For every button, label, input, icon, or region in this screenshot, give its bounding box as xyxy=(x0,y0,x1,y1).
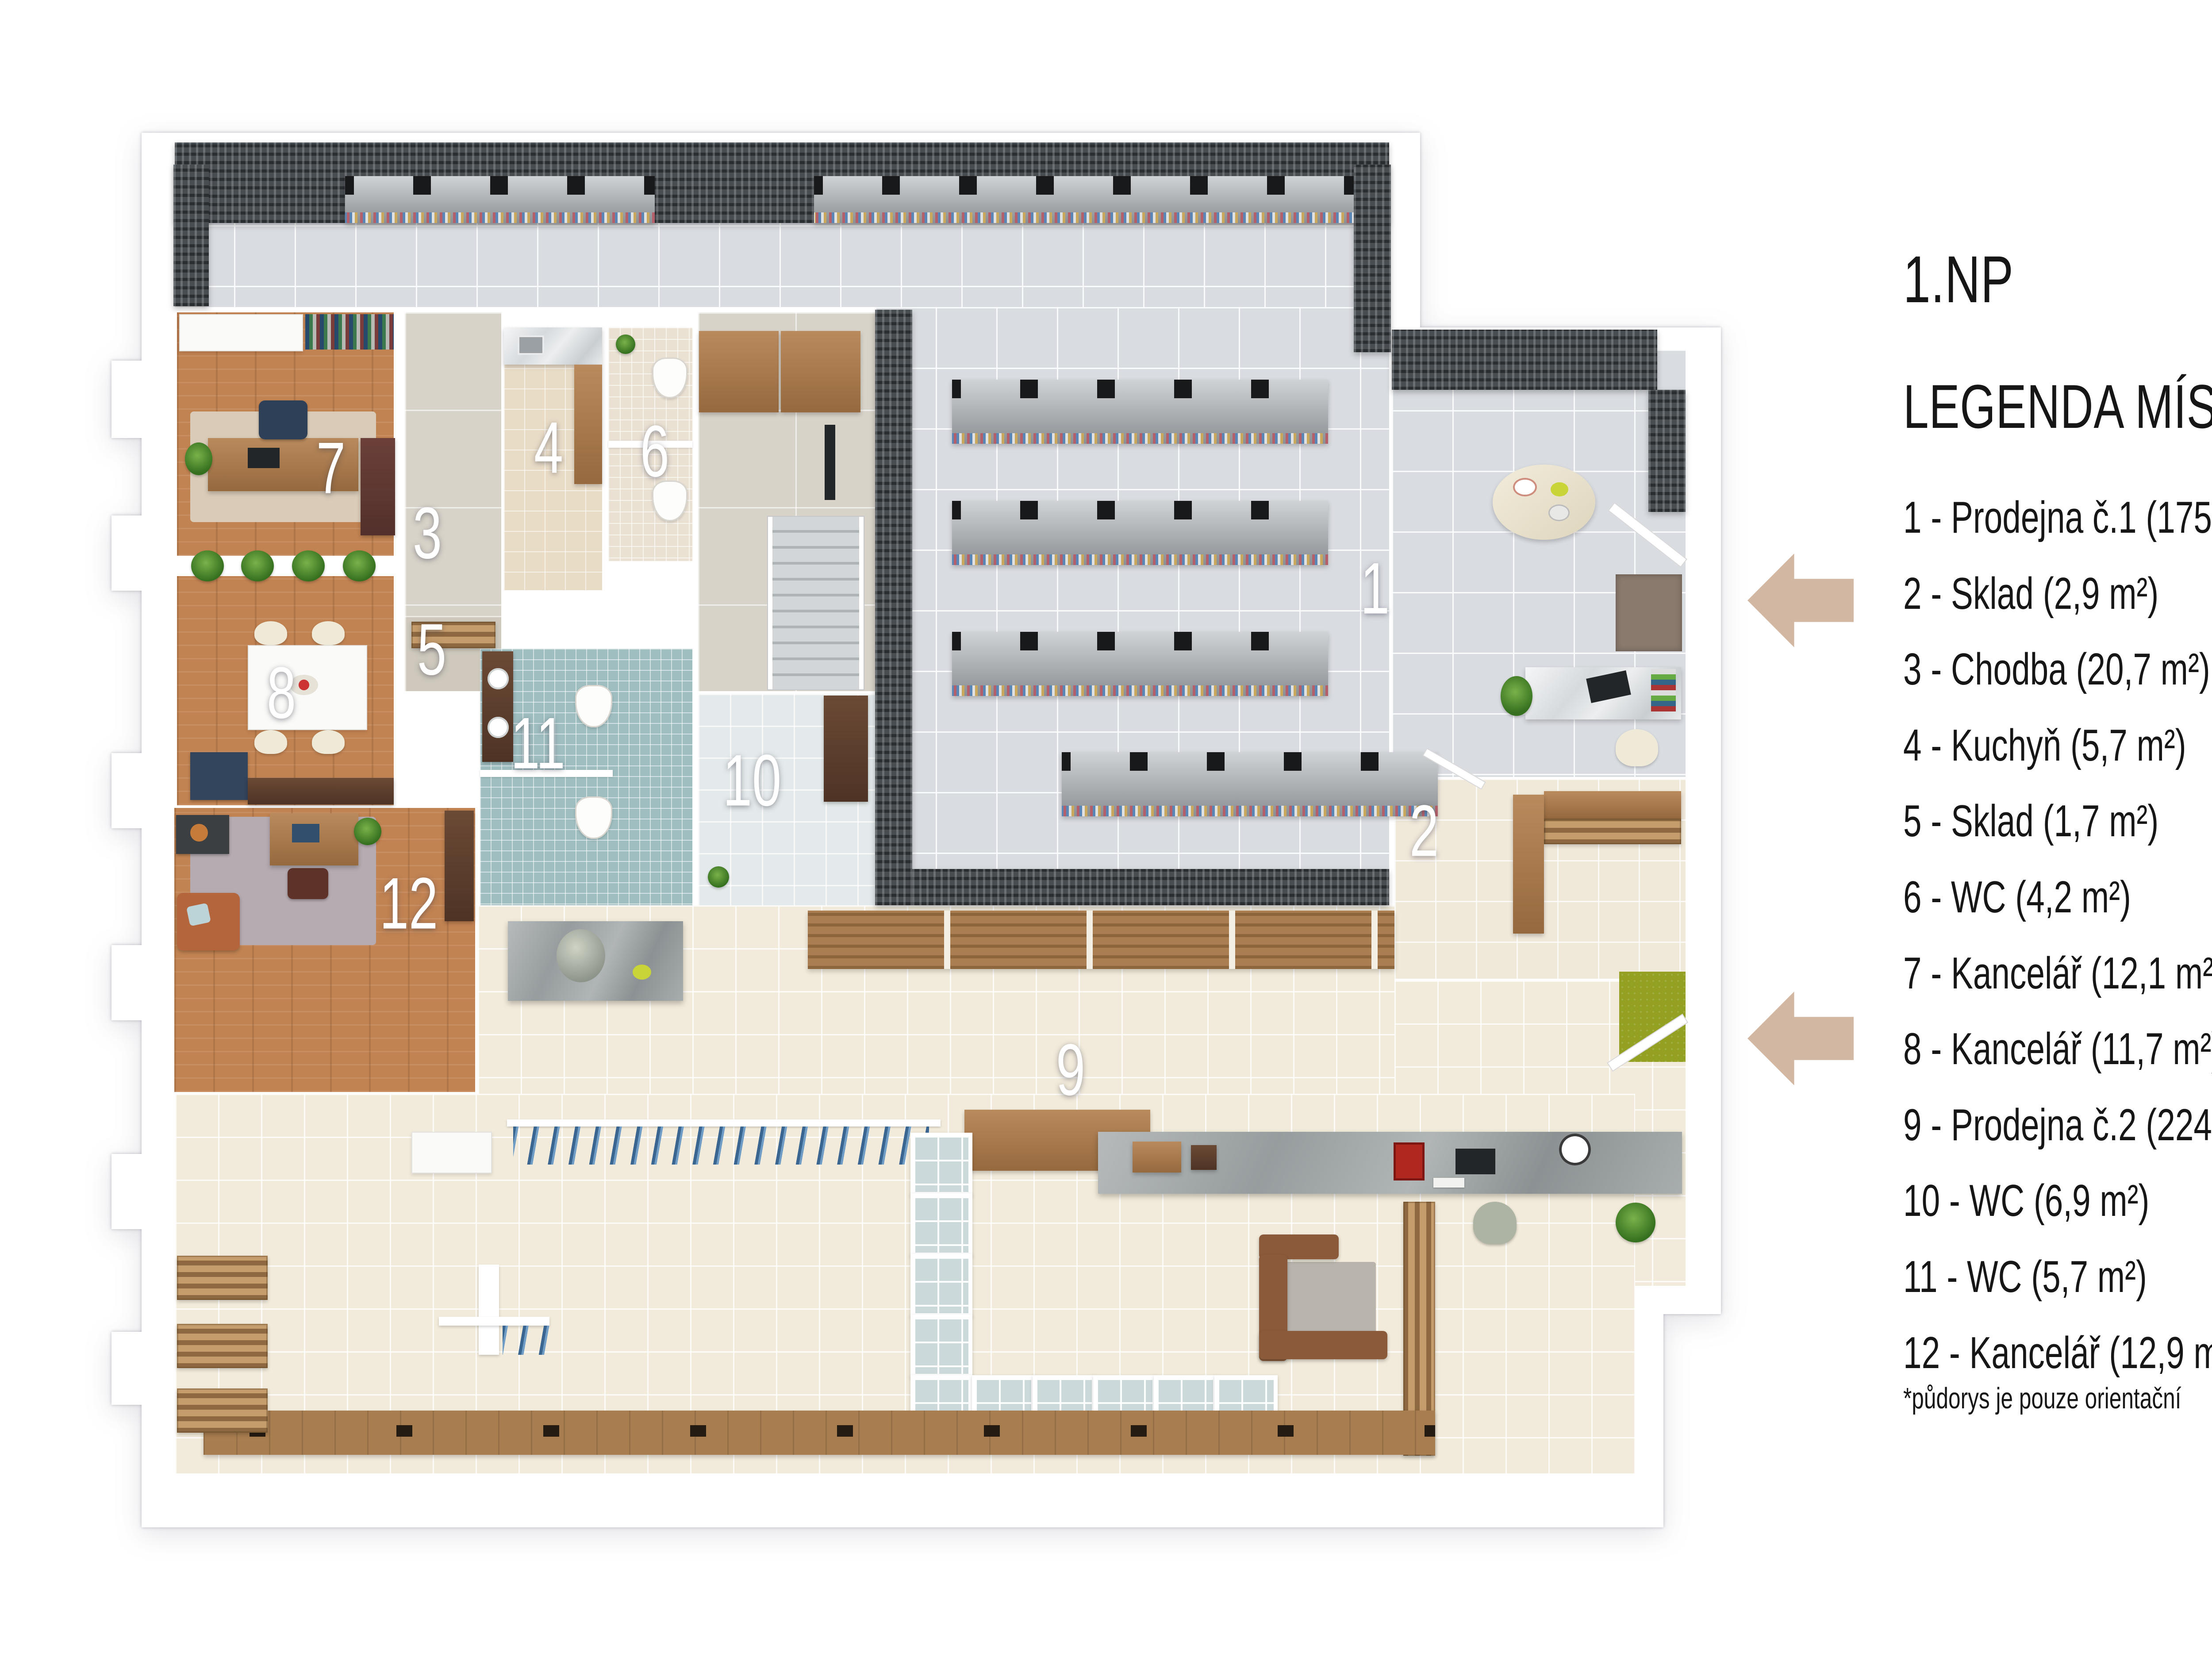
slat-rack xyxy=(177,1388,268,1433)
wall-bench-bottom xyxy=(204,1411,1435,1455)
wall-shelf-row-9 xyxy=(808,911,1394,969)
legend-item: 12 - Kancelář (12,9 m²) xyxy=(1903,1315,2212,1392)
t-display-post xyxy=(479,1265,499,1355)
wall-display-units xyxy=(814,176,1354,223)
plant xyxy=(616,335,635,354)
glass-display-table xyxy=(910,1193,972,1257)
office-chair-7 xyxy=(259,400,307,439)
shelving-mesh-bottom xyxy=(912,869,1389,905)
shelving-mesh-right xyxy=(1648,390,1686,512)
room-label-10: 10 xyxy=(723,744,781,817)
page: 1 2 3 4 5 6 7 8 9 10 11 12 1.NP LEGENDA … xyxy=(0,0,2212,1661)
room-2-shelf-side xyxy=(1513,795,1544,934)
dining-chair xyxy=(312,621,345,645)
office-chair-12 xyxy=(288,868,328,899)
wc-sink xyxy=(488,717,509,738)
plant xyxy=(1501,676,1532,716)
book-stack xyxy=(1651,669,1676,711)
entrance-rug xyxy=(1619,972,1686,1062)
entrance-arrow-icon xyxy=(1747,554,1854,647)
plant xyxy=(343,550,376,581)
legend-item: 10 - WC (6,9 m²) xyxy=(1903,1163,2212,1239)
gondola-shelf-row xyxy=(952,501,1328,565)
legend-item: 8 - Kancelář (11,7 m²) xyxy=(1903,1011,2212,1088)
floor-plan: 1 2 3 4 5 6 7 8 9 10 11 12 xyxy=(0,0,1902,1661)
kitchen-cabinet xyxy=(574,365,602,484)
wall-clock xyxy=(1559,1134,1591,1165)
dining-chair xyxy=(254,621,287,645)
room-label-12: 12 xyxy=(380,867,438,940)
bookshelf xyxy=(305,314,394,350)
legend-item: 7 - Kancelář (12,1 m²) xyxy=(1903,936,2212,1012)
office-cabinet xyxy=(179,314,303,351)
room-label-7: 7 xyxy=(316,432,346,505)
glass-display-table xyxy=(910,1254,972,1317)
checkout-chair-9 xyxy=(1473,1202,1517,1244)
clothes-rail xyxy=(507,1119,941,1127)
wardrobe-corridor xyxy=(781,331,860,412)
checkout-chair-1 xyxy=(1616,729,1658,766)
entrance-arrow-icon xyxy=(1747,992,1854,1085)
shelving-mesh-top-left xyxy=(173,165,209,306)
gondola-shelf-row xyxy=(952,632,1328,696)
lounge-sofa xyxy=(1259,1331,1387,1359)
room-2-shelf-top xyxy=(1544,791,1681,819)
gondola-shelf-row xyxy=(952,380,1328,444)
t-display-bar xyxy=(439,1317,549,1326)
room-label-6: 6 xyxy=(640,415,669,488)
wardrobe-12 xyxy=(445,811,474,921)
staircase xyxy=(768,517,864,689)
checkout-counter-9 xyxy=(1098,1132,1682,1194)
room-label-11: 11 xyxy=(511,707,565,780)
shelving-mesh-left xyxy=(875,310,912,905)
legend-note: *půdorys je pouze orientační xyxy=(1903,1381,2181,1415)
plate xyxy=(1513,478,1537,496)
keyboard xyxy=(1433,1178,1464,1188)
room-label-4: 4 xyxy=(534,411,563,484)
room-label-8: 8 xyxy=(267,657,296,730)
plant xyxy=(191,550,224,581)
room-label-1: 1 xyxy=(1360,552,1390,625)
legend-item: 3 - Chodba (20,7 m²) xyxy=(1903,632,2212,708)
plant xyxy=(708,866,729,888)
kitchenette-counter xyxy=(248,778,394,804)
legend-item: 5 - Sklad (1,7 m²) xyxy=(1903,784,2212,860)
legend-item: 1 - Prodejna č.1 (175 m²) xyxy=(1903,480,2212,556)
glass-display-table xyxy=(910,1133,972,1196)
wc-sink xyxy=(488,668,509,689)
plant xyxy=(292,550,325,581)
laptop xyxy=(248,448,280,468)
shelving-mesh-step-h xyxy=(1392,330,1657,390)
room-label-2: 2 xyxy=(1409,795,1439,868)
display-table xyxy=(411,1132,492,1173)
room-2-shelf-slats xyxy=(1544,819,1681,844)
dining-chair xyxy=(254,730,287,754)
legend-item: 11 - WC (5,7 m²) xyxy=(1903,1239,2212,1315)
laptop xyxy=(1455,1149,1495,1174)
plant xyxy=(241,550,274,581)
wardrobe-corridor xyxy=(699,331,779,412)
legend-item: 6 - WC (4,2 m²) xyxy=(1903,860,2212,936)
glass-display-table xyxy=(910,1315,972,1378)
slat-rack xyxy=(177,1256,268,1300)
plant xyxy=(354,818,381,845)
counter-box xyxy=(1133,1142,1181,1173)
hanging-clothes xyxy=(503,1326,551,1355)
laptop xyxy=(292,824,319,842)
plate xyxy=(1548,504,1570,521)
bowl xyxy=(633,965,651,980)
shelving-mesh-corner-v xyxy=(1354,165,1391,352)
plant xyxy=(1616,1203,1655,1242)
legend-list: 1 - Prodejna č.1 (175 m²) 2 - Sklad (2,9… xyxy=(1903,480,2212,1391)
hanging-clothes xyxy=(513,1127,929,1165)
oval-table xyxy=(1493,465,1595,540)
room-label-9: 9 xyxy=(1056,1034,1085,1107)
legend-heading: LEGENDA MÍSTNOSTÍ: xyxy=(1903,371,2212,442)
wc10-cabinet xyxy=(824,696,868,802)
room-label-3: 3 xyxy=(413,497,442,570)
dining-chair xyxy=(312,730,345,754)
vase xyxy=(557,929,605,982)
bowl xyxy=(1551,482,1568,496)
wall-panel xyxy=(825,425,835,500)
cash-register xyxy=(1394,1142,1425,1180)
room-label-5: 5 xyxy=(417,613,446,686)
legend-item: 4 - Kuchyň (5,7 m²) xyxy=(1903,708,2212,784)
side-desk xyxy=(190,752,248,800)
wardrobe xyxy=(361,438,395,535)
legend-item: 9 - Prodejna č.2 (224,2 m²) xyxy=(1903,1088,2212,1164)
kitchen-sink xyxy=(518,335,544,355)
gondola-shelf-row xyxy=(1062,752,1438,816)
doormat xyxy=(1616,574,1682,651)
floor-title: 1.NP xyxy=(1903,241,2014,318)
counter-box xyxy=(1191,1145,1217,1170)
legend-item: 2 - Sklad (2,9 m²) xyxy=(1903,556,2212,632)
slat-rack xyxy=(177,1324,268,1368)
plant xyxy=(185,442,212,475)
wall-display-units xyxy=(345,176,655,223)
decor-bowl xyxy=(190,824,208,842)
